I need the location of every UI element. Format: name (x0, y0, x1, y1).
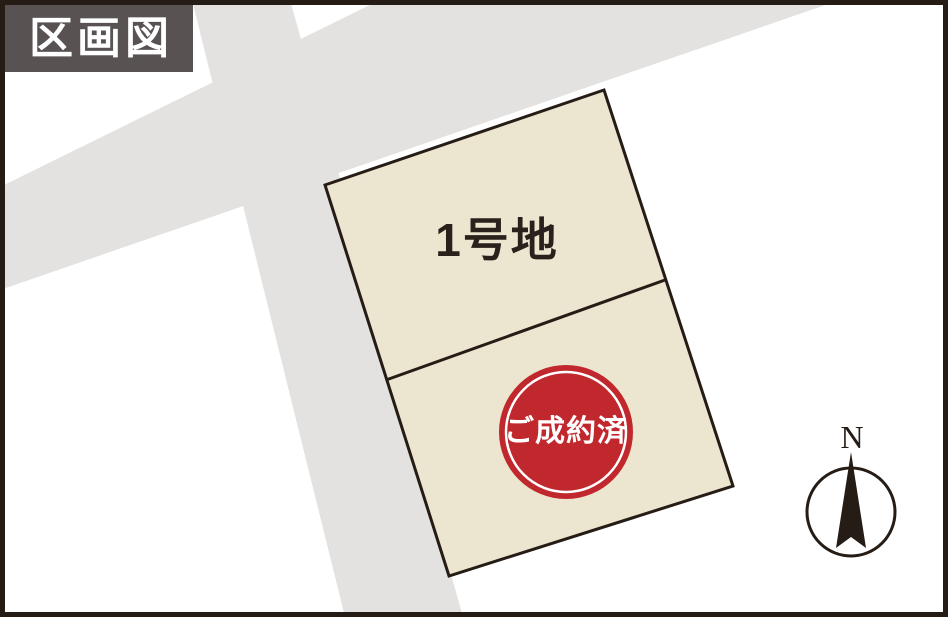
plot-map-canvas (0, 0, 948, 617)
compass-north-label: N (840, 421, 863, 453)
plot-map-page: 区画図 1号地 ご成約済 N (0, 0, 948, 617)
page-title: 区画図 (5, 5, 193, 72)
lot-1-label: 1号地 (435, 217, 559, 263)
sold-badge-label: ご成約済 (504, 417, 628, 447)
